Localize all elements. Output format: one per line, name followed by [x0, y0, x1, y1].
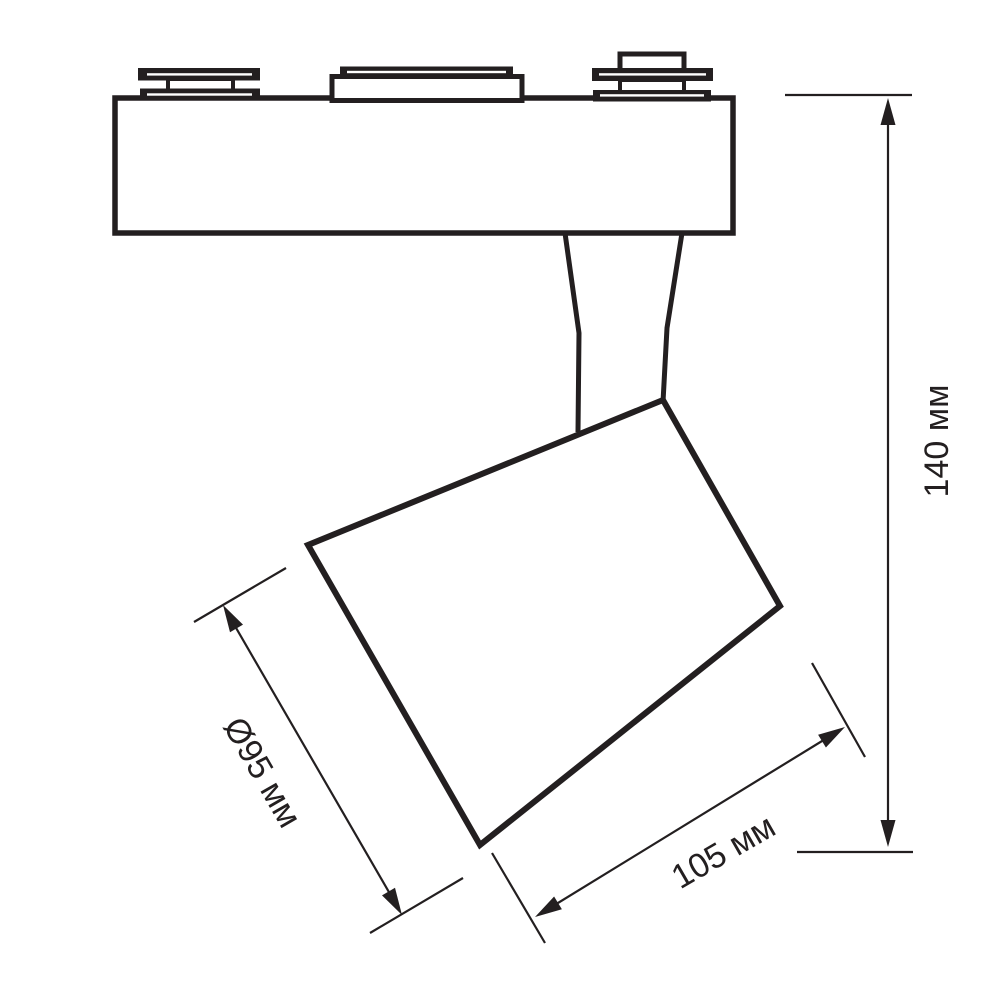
clip-base: [332, 77, 522, 101]
lamp-head: [308, 400, 780, 845]
extension-line: [370, 878, 463, 933]
clip-bar-slot: [347, 71, 506, 73]
arrowhead-down-right-icon: [382, 888, 402, 915]
contact-clip-middle: [332, 67, 522, 101]
adapter-body: [115, 98, 733, 233]
track-adapter: [115, 54, 733, 233]
dimension-drawing: 140 мм 105 мм Ø95 мм: [0, 0, 1000, 1000]
clip-bar-slot: [147, 73, 252, 75]
arrowhead-up-left-icon: [223, 605, 243, 632]
neck-right-line: [663, 233, 682, 402]
extension-line: [194, 568, 286, 622]
arrowhead-down-icon: [881, 820, 896, 847]
contact-clip-left: [138, 68, 260, 101]
dimension-height: 140 мм: [785, 95, 956, 852]
contact-clip-right: [592, 54, 713, 102]
dimension-label-height: 140 мм: [918, 385, 956, 498]
arrowhead-up-icon: [881, 98, 896, 125]
arrowhead-left-icon: [535, 897, 562, 918]
arrowhead-right-icon: [818, 727, 845, 748]
neck-left-line: [565, 233, 579, 432]
clip-bar-slot: [600, 94, 704, 96]
clip-bar-slot: [599, 73, 706, 75]
track-light-diagram: 140 мм 105 мм Ø95 мм: [0, 0, 1000, 1000]
extension-line: [492, 853, 545, 943]
dimension-label-length: 105 мм: [665, 807, 782, 896]
clip-bar-slot: [147, 93, 252, 95]
